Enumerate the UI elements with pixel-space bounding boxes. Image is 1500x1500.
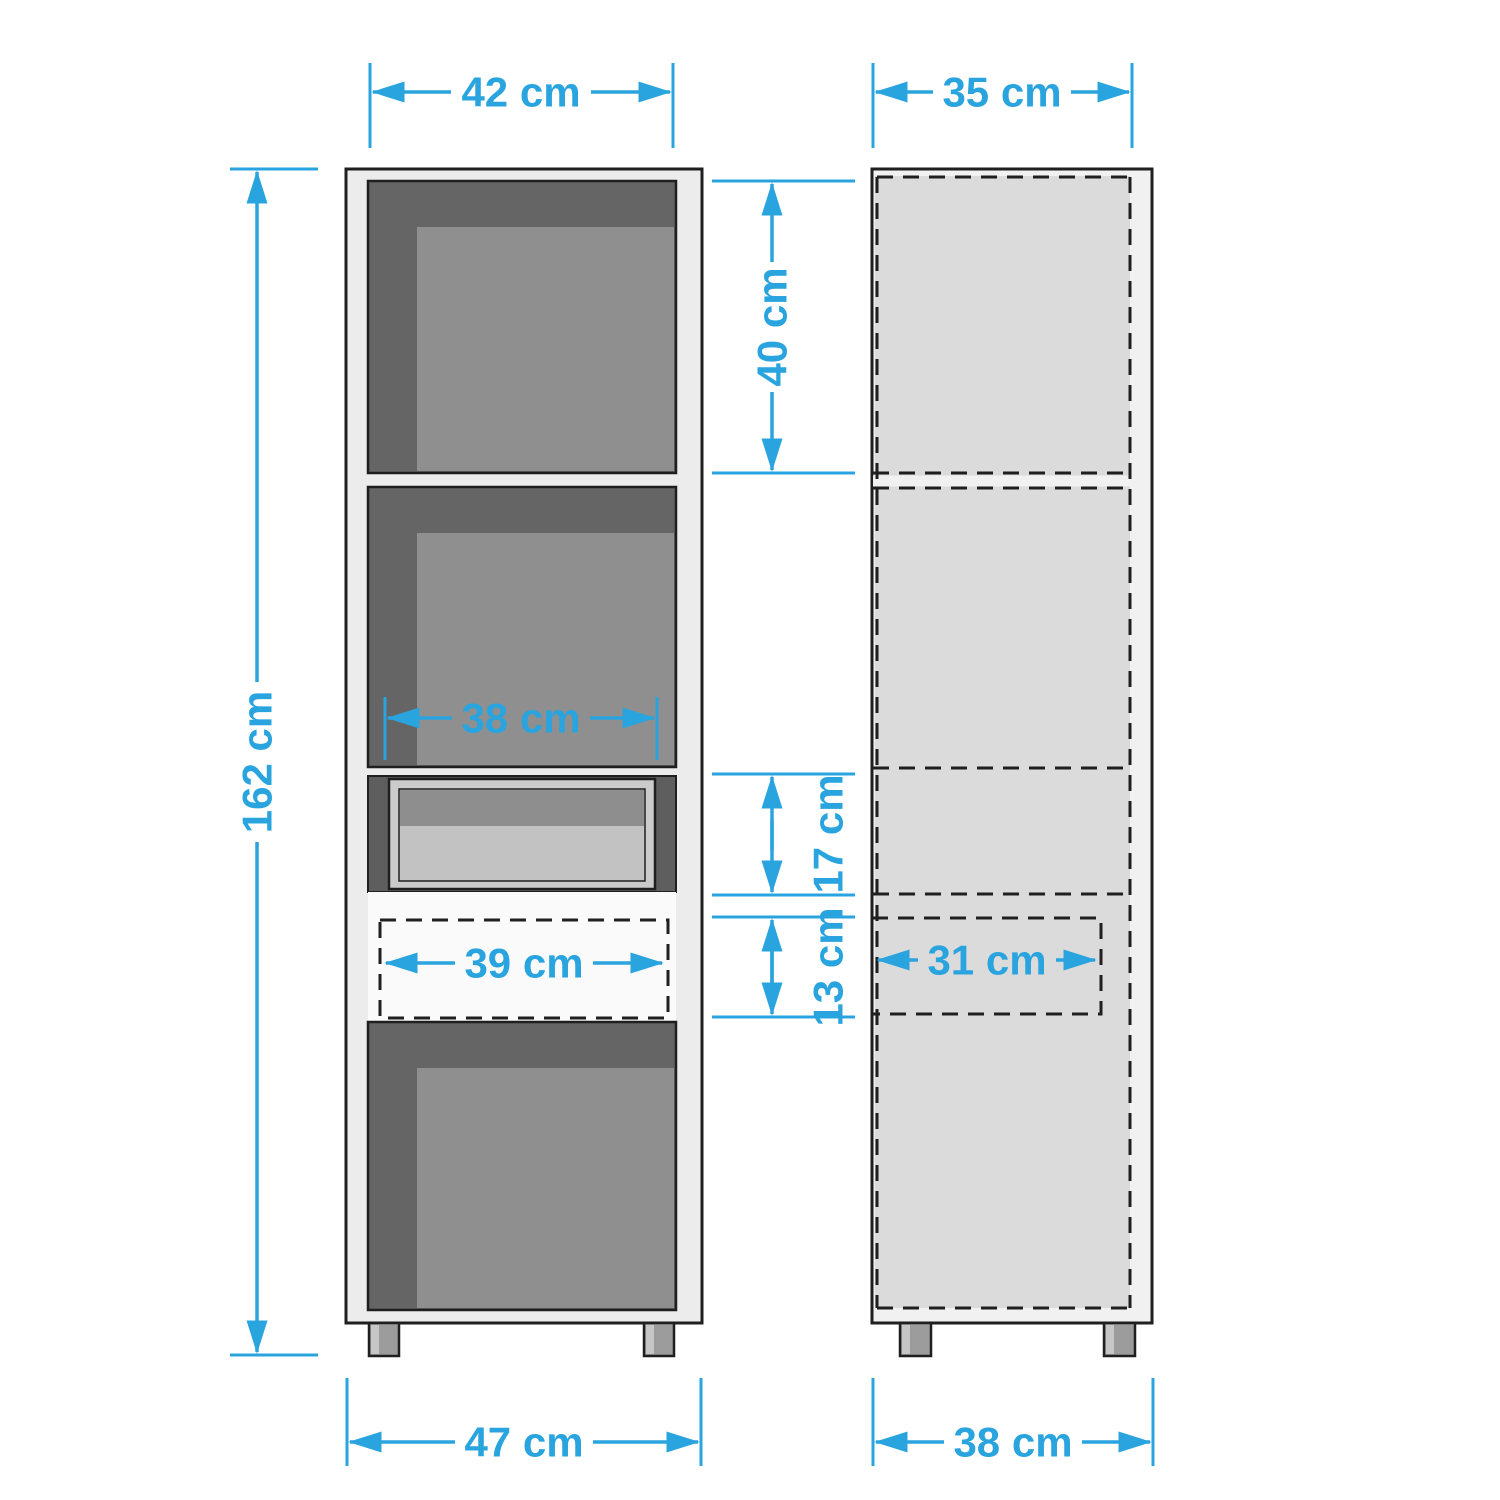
dim-label-13cm: 13 cm (805, 907, 852, 1026)
dim-niche-height: 17 cm (712, 774, 855, 895)
dim-side-top-depth: 35 cm (873, 63, 1132, 148)
dim-label-31cm: 31 cm (927, 937, 1046, 984)
front-view (346, 169, 702, 1356)
dim-overall-height: 162 cm (230, 169, 318, 1355)
dim-label-35cm: 35 cm (942, 69, 1061, 116)
dim-drawer-height: 13 cm (712, 907, 855, 1026)
dim-label-38cm-base: 38 cm (953, 1419, 1072, 1466)
side-panel-area (875, 176, 1130, 1308)
side-view (872, 169, 1152, 1356)
diagram-canvas: 42 cm 35 cm 162 cm 40 cm 38 cm (0, 0, 1500, 1500)
front-open-niche (368, 776, 676, 892)
dim-label-39cm: 39 cm (464, 940, 583, 987)
dim-front-top-width: 42 cm (370, 63, 673, 148)
dim-label-162cm: 162 cm (234, 691, 281, 833)
dim-label-17cm: 17 cm (805, 774, 852, 893)
dim-label-42cm: 42 cm (461, 69, 580, 116)
dim-label-38cm-inner: 38 cm (461, 695, 580, 742)
front-feet (369, 1323, 674, 1356)
dimension-diagram: 42 cm 35 cm 162 cm 40 cm 38 cm (0, 0, 1500, 1500)
dim-base-width: 47 cm (347, 1378, 701, 1466)
dim-base-depth: 38 cm (873, 1378, 1153, 1466)
dim-label-40cm: 40 cm (749, 267, 796, 386)
front-compartment-bottom (368, 1022, 676, 1310)
dim-label-47cm: 47 cm (464, 1419, 583, 1466)
side-feet (900, 1323, 1135, 1356)
front-compartment-top (368, 181, 676, 473)
dim-top-compartment-height: 40 cm (712, 181, 855, 473)
